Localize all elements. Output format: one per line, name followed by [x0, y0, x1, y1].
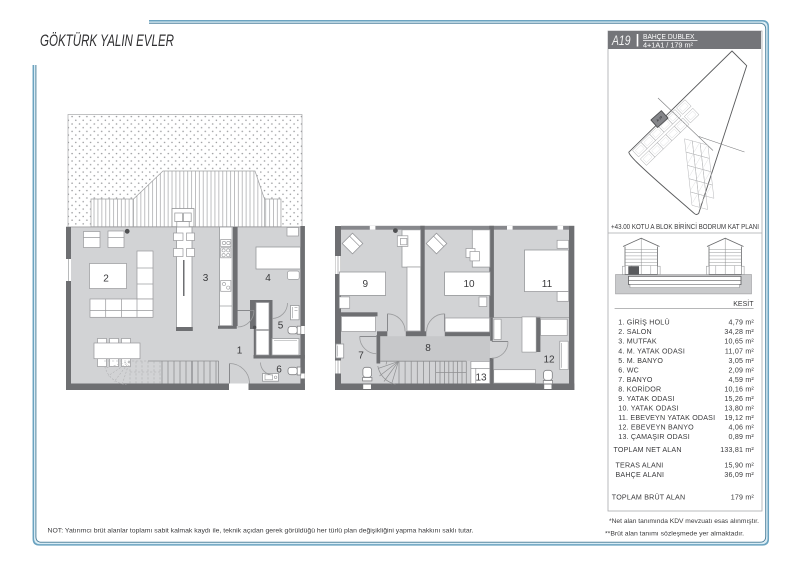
svg-text:3,05 m²: 3,05 m²: [729, 357, 755, 365]
svg-text:3. MUTFAK: 3. MUTFAK: [618, 338, 657, 346]
svg-text:+43.00 KOTU A BLOK BİRİNCİ BOD: +43.00 KOTU A BLOK BİRİNCİ BODRUM KAT PL…: [611, 222, 759, 231]
svg-text:8: 8: [425, 343, 431, 354]
svg-text:19,12 m²: 19,12 m²: [724, 414, 754, 422]
svg-text:13: 13: [475, 373, 487, 384]
svg-text:BAHÇE ALANI: BAHÇE ALANI: [616, 471, 665, 479]
svg-text:TOPLAM BRÜT ALAN: TOPLAM BRÜT ALAN: [612, 493, 686, 501]
svg-text:7. BANYO: 7. BANYO: [618, 376, 653, 384]
svg-text:A19: A19: [611, 33, 631, 48]
svg-text:5: 5: [278, 321, 284, 332]
svg-text:10: 10: [463, 279, 475, 290]
svg-text:6. WC: 6. WC: [618, 366, 639, 374]
svg-text:TERAS ALANI: TERAS ALANI: [616, 461, 664, 469]
svg-text:**Brüt alan tanımı sözleşmede: **Brüt alan tanımı sözleşmede yer almakt…: [605, 531, 744, 538]
svg-text:10,16 m²: 10,16 m²: [724, 385, 754, 393]
svg-text:36,09 m²: 36,09 m²: [724, 471, 754, 479]
svg-text:NOT: Yatırımcı brüt alanlar to: NOT: Yatırımcı brüt alanlar toplamı sabi…: [48, 528, 474, 535]
svg-text:4+1A1 / 179 m²: 4+1A1 / 179 m²: [643, 40, 694, 49]
svg-text:133,81 m²: 133,81 m²: [720, 446, 754, 454]
svg-text:34,28 m²: 34,28 m²: [724, 328, 754, 336]
svg-text:GÖKTÜRK YALIN EVLER: GÖKTÜRK YALIN EVLER: [40, 31, 174, 50]
svg-text:13,80 m²: 13,80 m²: [724, 404, 754, 412]
svg-text:1. GİRİŞ HOLÜ: 1. GİRİŞ HOLÜ: [618, 318, 669, 327]
svg-text:4,06 m²: 4,06 m²: [729, 423, 755, 431]
svg-text:15,90 m²: 15,90 m²: [724, 461, 754, 469]
svg-text:11: 11: [542, 279, 553, 290]
svg-text:6: 6: [276, 365, 282, 376]
svg-text:179 m²: 179 m²: [731, 493, 755, 501]
svg-text:*Net alan tanımında KDV mevzua: *Net alan tanımında KDV mevzuatı esas al…: [609, 518, 759, 525]
svg-text:11. EBEVEYN YATAK ODASI: 11. EBEVEYN YATAK ODASI: [618, 414, 715, 422]
svg-text:2,09 m²: 2,09 m²: [729, 366, 755, 374]
svg-text:0,89 m²: 0,89 m²: [729, 433, 755, 441]
svg-text:2. SALON: 2. SALON: [618, 328, 652, 336]
svg-text:5. M. BANYO: 5. M. BANYO: [618, 357, 663, 365]
svg-text:4,79 m²: 4,79 m²: [729, 319, 755, 327]
svg-text:9. YATAK ODASI: 9. YATAK ODASI: [618, 395, 674, 403]
svg-text:13. ÇAMAŞIR ODASI: 13. ÇAMAŞIR ODASI: [618, 433, 690, 441]
svg-text:10. YATAK ODASI: 10. YATAK ODASI: [618, 404, 678, 412]
svg-text:11,07 m²: 11,07 m²: [725, 347, 755, 355]
svg-text:3: 3: [203, 273, 209, 284]
svg-text:12. EBEVEYN BANYO: 12. EBEVEYN BANYO: [618, 423, 694, 431]
svg-text:2: 2: [103, 274, 109, 285]
svg-text:4,59 m²: 4,59 m²: [729, 376, 755, 384]
svg-text:8. KORİDOR: 8. KORİDOR: [618, 384, 661, 393]
svg-text:4. M. YATAK ODASI: 4. M. YATAK ODASI: [618, 347, 685, 355]
svg-text:1: 1: [237, 346, 243, 357]
svg-text:4: 4: [265, 273, 271, 284]
svg-text:9: 9: [363, 279, 369, 290]
svg-text:15,26 m²: 15,26 m²: [724, 395, 754, 403]
svg-text:12: 12: [543, 355, 555, 366]
svg-text:7: 7: [358, 351, 364, 362]
svg-text:KESİT: KESİT: [733, 299, 754, 308]
svg-text:TOPLAM NET ALAN: TOPLAM NET ALAN: [614, 446, 682, 454]
svg-text:10,65 m²: 10,65 m²: [724, 338, 754, 346]
